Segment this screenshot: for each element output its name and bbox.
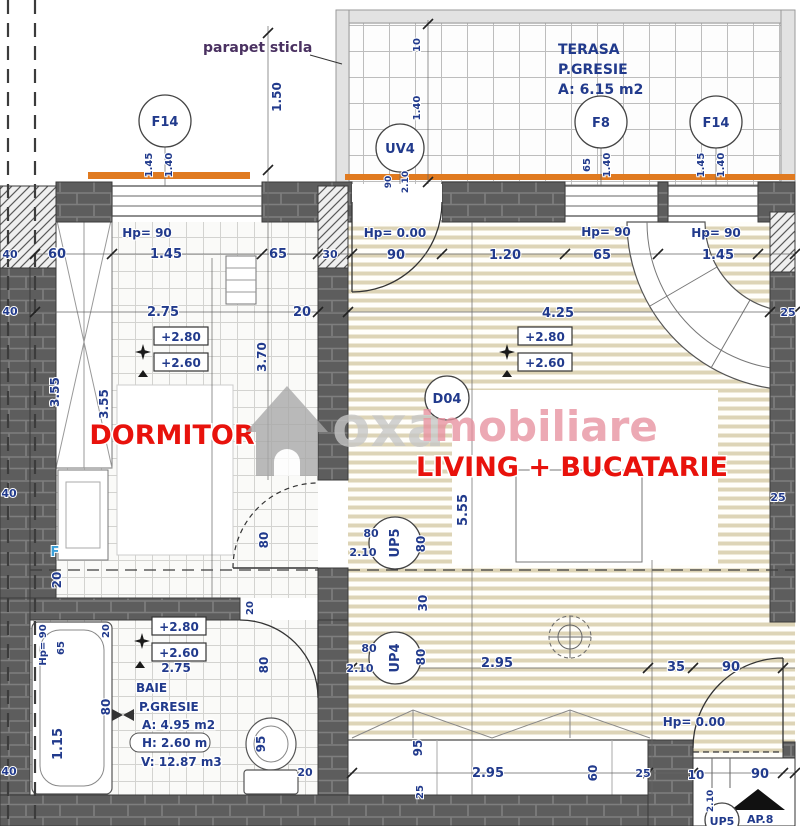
dimension-label: 2.95: [481, 656, 513, 671]
dimension-label: 20: [101, 624, 112, 638]
dimension-label: 10: [688, 768, 705, 782]
dimension-label: 10: [412, 38, 423, 52]
dimension-label: 30: [322, 248, 338, 261]
dimension-label: 1.15: [51, 728, 66, 760]
dimension-label: Hp= 90: [581, 225, 631, 239]
dimension-label: 60: [586, 765, 600, 782]
dimension-label: 3.55: [97, 389, 111, 419]
dimension-label: 30: [416, 595, 430, 612]
terrace-door-code: UV4: [385, 142, 415, 157]
baie-height: H: 2.60 m: [142, 736, 207, 750]
dimension-label: 3.70: [255, 342, 269, 372]
dimension-label: 1.45: [150, 247, 182, 262]
dimension-label: 90: [387, 248, 405, 263]
baie-area: A: 4.95 m2: [142, 718, 215, 732]
baie-volume: V: 12.87 m3: [141, 755, 222, 769]
dimension-label: 20: [245, 601, 256, 615]
dimension-label: 90: [722, 660, 740, 675]
dimension-label: 20: [297, 766, 313, 779]
dimension-label: 80: [257, 532, 271, 549]
dimension-label: 80: [99, 699, 113, 716]
dimension-label: 80: [414, 649, 428, 666]
dimension-label: 25: [780, 306, 795, 319]
dimension-label: 80: [361, 642, 377, 655]
baie-north-wall: [30, 598, 240, 620]
dimension-label: 2.10: [401, 171, 411, 193]
terrace-parapet-left: [336, 10, 349, 188]
dimension-label: 1.45: [696, 153, 707, 178]
baie-finish: P.GRESIE: [139, 700, 199, 714]
dimension-label: +2.60: [161, 356, 201, 370]
dimension-label: 2.10: [706, 790, 716, 812]
bathtub-inner: [40, 630, 104, 786]
terrace-door-opening: [352, 184, 442, 220]
dimension-label: Hp= 90: [122, 226, 172, 240]
dimension-label: +2.60: [159, 646, 199, 660]
dimension-label: 1.40: [412, 96, 423, 121]
window-code: F8: [592, 116, 610, 131]
dimension-label: 2.75: [147, 305, 179, 320]
window-f14-left: [112, 186, 262, 216]
dimension-label: 25: [770, 491, 785, 504]
dimension-label: 2.75: [161, 661, 191, 675]
window-code: F14: [152, 115, 179, 130]
watermark-imobiliare: imobiliare: [420, 402, 658, 451]
terasa-finish: P.GRESIE: [558, 62, 628, 78]
terrace-parapet-top: [336, 10, 795, 23]
bottom-wall: [0, 795, 655, 826]
dimension-label: +2.80: [159, 620, 199, 634]
dimension-label: 65: [582, 158, 593, 172]
dimension-label: 40: [2, 305, 18, 318]
floor-plan-drawing: F14 UV4 F8 F14 D04 UP5 UP4 UP5 1.50101.4…: [0, 0, 800, 826]
dimension-label: 40: [1, 487, 17, 500]
table: [516, 470, 642, 562]
dimension-label: 95: [254, 736, 268, 753]
floor-plan: F14 UV4 F8 F14 D04 UP5 UP4 UP5 1.50101.4…: [0, 0, 800, 826]
dimension-label: 90: [751, 767, 769, 782]
bed: [117, 385, 233, 555]
dimension-label: 2.10: [349, 546, 376, 559]
window-f8: [565, 186, 658, 216]
dimension-label: 90: [384, 176, 394, 189]
dimension-label: 1.40: [164, 153, 175, 178]
dimension-label: 80: [363, 527, 379, 540]
dimension-label: 2.10: [346, 662, 373, 675]
baie-name: BAIE: [136, 681, 167, 695]
dimension-label: 4.25: [542, 306, 574, 321]
dimension-label: 5.55: [456, 494, 471, 526]
living-label: LIVING + BUCATARIE: [416, 452, 728, 483]
dimension-label: 20: [50, 572, 64, 589]
dimension-label: F: [51, 545, 60, 560]
baie-east-wall: [318, 620, 348, 795]
dimension-label: 40: [2, 248, 18, 261]
door-code: UP4: [388, 643, 403, 672]
dimension-label: 1.40: [602, 153, 613, 178]
dimension-label: 25: [635, 767, 650, 780]
dimension-label: 40: [1, 765, 17, 778]
insulation-strip-right: [345, 174, 795, 180]
dimension-label: +2.60: [525, 356, 565, 370]
parapet-label: parapet sticla: [203, 40, 312, 56]
toilet-tank: [244, 770, 298, 794]
stair-code: UP5: [710, 815, 735, 826]
right-wall: [770, 222, 795, 622]
dimension-label: 65: [593, 248, 611, 263]
dimension-label: 25: [415, 785, 426, 799]
dimension-label: 2.95: [472, 766, 504, 781]
window-code: F14: [703, 116, 730, 131]
dimension-label: Hp= 0.00: [364, 226, 426, 240]
dimension-label: 65: [269, 247, 287, 262]
dimension-label: 65: [56, 641, 67, 655]
apartment-label: AP.8: [747, 813, 773, 826]
dimension-label: +2.80: [161, 330, 201, 344]
window-f14-right: [668, 186, 758, 216]
terrace-parapet-right: [781, 10, 795, 188]
dimension-label: 20: [293, 305, 311, 320]
dimension-label: 80: [257, 657, 271, 674]
dimension-label: 1.20: [489, 248, 521, 263]
dimension-label: 1.40: [716, 153, 727, 178]
dimension-label: 60: [48, 247, 66, 262]
dimension-label: 35: [667, 660, 685, 675]
hatched-pier-right: [770, 212, 795, 272]
dimension-label: Hp= 90: [691, 226, 741, 240]
dormitor-label: DORMITOR: [89, 420, 254, 451]
dimension-label: 1.45: [144, 153, 155, 178]
terasa-name: TERASA: [558, 42, 620, 58]
door-code: UP5: [388, 528, 403, 557]
dimension-label: 80: [414, 536, 428, 553]
dimension-label: Hp= 90: [38, 624, 49, 665]
terasa-area: A: 6.15 m2: [558, 82, 643, 98]
dimension-label: 95: [411, 740, 425, 757]
dimension-label: +2.80: [525, 330, 565, 344]
dimension-label: 3.55: [48, 377, 62, 407]
dimension-label: 1.50: [270, 82, 284, 112]
dimension-label: 1.45: [702, 248, 734, 263]
dimension-label: Hp= 0.00: [663, 715, 725, 729]
